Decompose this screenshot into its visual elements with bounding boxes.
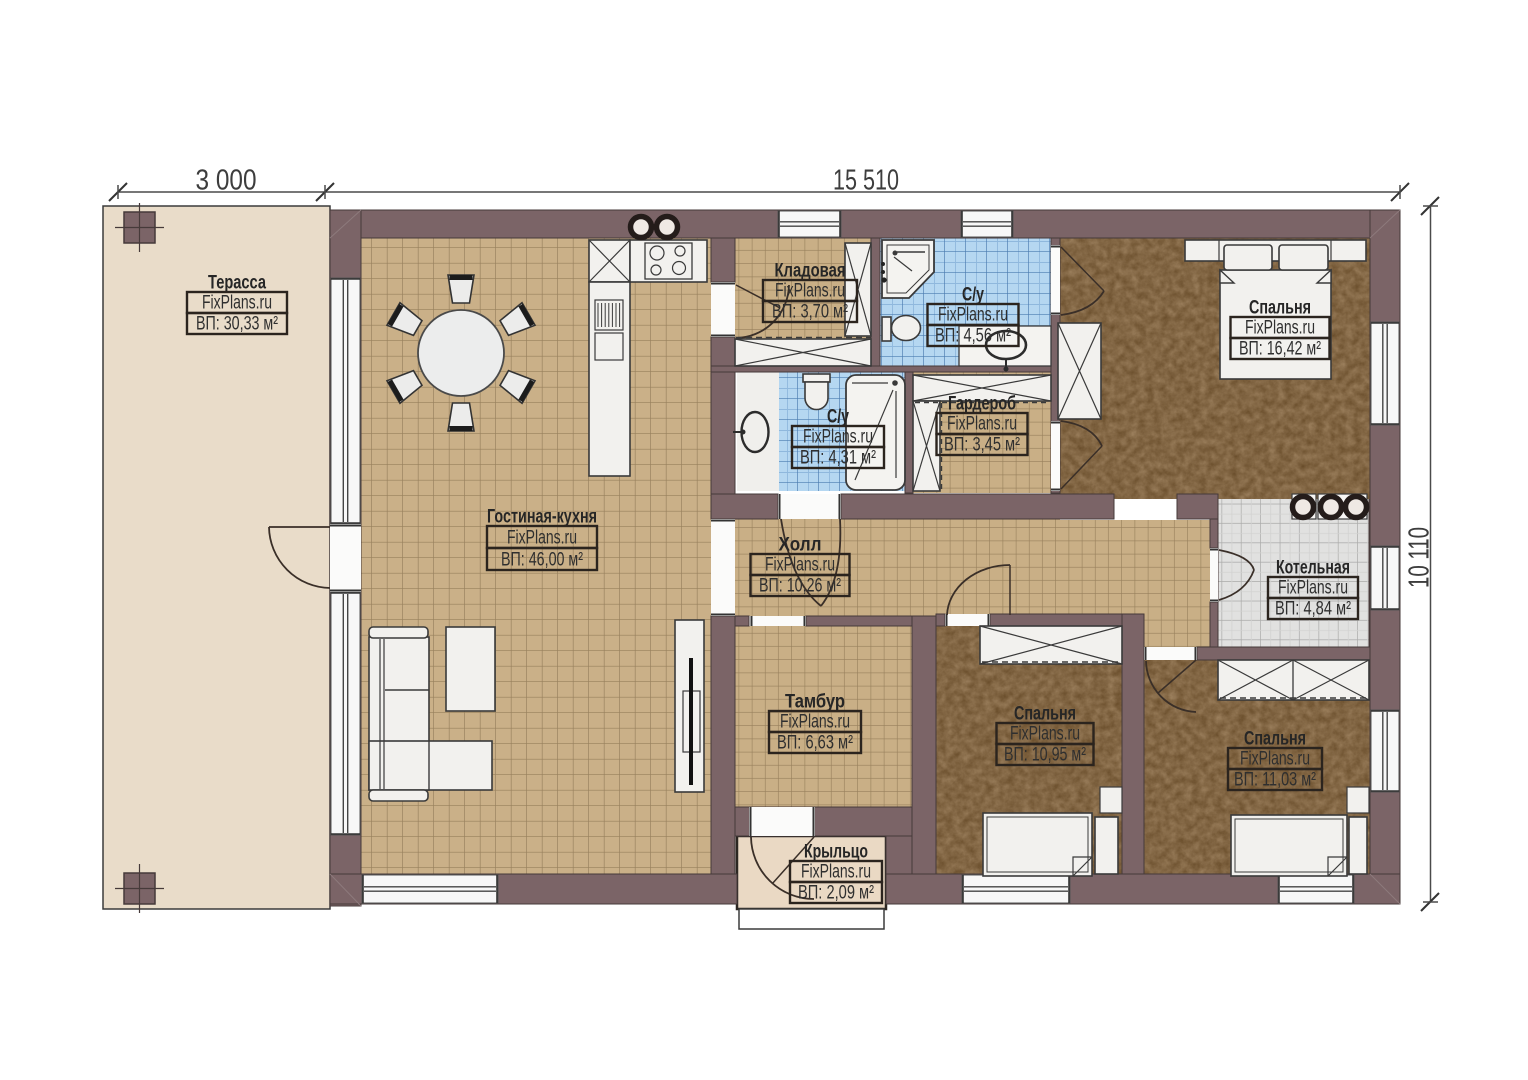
svg-text:Спальня: Спальня: [1249, 298, 1311, 319]
svg-text:Кладовая: Кладовая: [775, 261, 846, 282]
svg-text:ВП: 10,26 м²: ВП: 10,26 м²: [759, 576, 841, 597]
svg-text:ВП: 3,70 м²: ВП: 3,70 м²: [772, 302, 848, 323]
svg-text:ВП: 4,56 м²: ВП: 4,56 м²: [935, 326, 1011, 347]
svg-text:ВП: 6,63 м²: ВП: 6,63 м²: [777, 733, 853, 754]
svg-text:FixPlans.ru: FixPlans.ru: [1278, 578, 1348, 599]
svg-text:Крыльцо: Крыльцо: [804, 842, 868, 863]
svg-text:Спальня: Спальня: [1014, 704, 1076, 725]
svg-text:С/у: С/у: [962, 285, 984, 306]
svg-text:10 110: 10 110: [1404, 527, 1436, 588]
svg-text:ВП: 30,33 м²: ВП: 30,33 м²: [196, 314, 278, 335]
svg-text:ВП: 11,03 м²: ВП: 11,03 м²: [1234, 770, 1316, 791]
svg-text:ВП: 16,42 м²: ВП: 16,42 м²: [1239, 339, 1321, 360]
svg-text:Терасса: Терасса: [208, 273, 266, 294]
svg-text:ВП: 46,00 м²: ВП: 46,00 м²: [501, 550, 583, 571]
svg-text:15 510: 15 510: [833, 165, 899, 197]
svg-text:С/у: С/у: [827, 407, 849, 428]
svg-text:3 000: 3 000: [196, 165, 257, 197]
svg-text:Гостиная-кухня: Гостиная-кухня: [487, 507, 597, 528]
svg-text:FixPlans.ru: FixPlans.ru: [947, 414, 1017, 435]
svg-text:Котельная: Котельная: [1276, 558, 1350, 579]
svg-text:Холл: Холл: [779, 535, 822, 556]
svg-text:ВП: 4,31 м²: ВП: 4,31 м²: [800, 448, 876, 469]
svg-text:FixPlans.ru: FixPlans.ru: [202, 293, 272, 314]
svg-text:FixPlans.ru: FixPlans.ru: [938, 305, 1008, 326]
svg-text:FixPlans.ru: FixPlans.ru: [780, 712, 850, 733]
svg-text:FixPlans.ru: FixPlans.ru: [765, 555, 835, 576]
svg-text:FixPlans.ru: FixPlans.ru: [507, 528, 577, 549]
svg-text:FixPlans.ru: FixPlans.ru: [1240, 749, 1310, 770]
svg-text:ВП: 2,09 м²: ВП: 2,09 м²: [798, 883, 874, 904]
svg-text:FixPlans.ru: FixPlans.ru: [803, 427, 873, 448]
svg-text:Гардероб: Гардероб: [948, 394, 1016, 415]
svg-text:ВП: 3,45 м²: ВП: 3,45 м²: [944, 435, 1020, 456]
svg-text:Тамбур: Тамбур: [785, 692, 845, 713]
svg-text:ВП: 10,95 м²: ВП: 10,95 м²: [1004, 745, 1086, 766]
svg-text:FixPlans.ru: FixPlans.ru: [1010, 724, 1080, 745]
svg-text:FixPlans.ru: FixPlans.ru: [801, 862, 871, 883]
svg-text:FixPlans.ru: FixPlans.ru: [775, 281, 845, 302]
svg-text:Спальня: Спальня: [1244, 729, 1306, 750]
svg-text:FixPlans.ru: FixPlans.ru: [1245, 318, 1315, 339]
svg-text:ВП: 4,84 м²: ВП: 4,84 м²: [1275, 599, 1351, 620]
